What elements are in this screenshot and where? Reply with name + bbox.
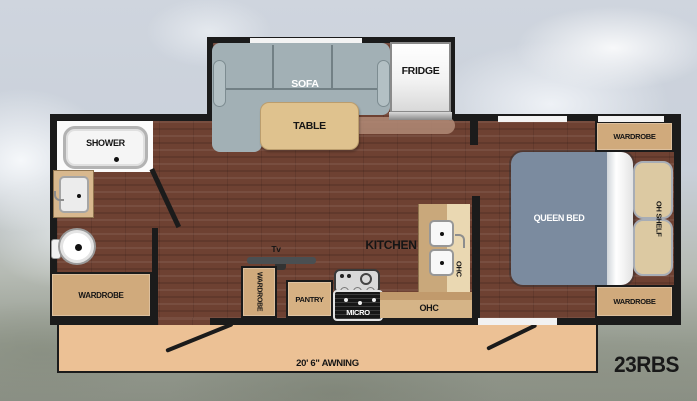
cooktop-knob [347,274,351,278]
bathroom-partition-wall [152,228,158,324]
sink-drain [440,232,444,236]
bathroom-wardrobe-label: WARDROBE [52,274,150,316]
sink-drain [440,261,444,265]
bed-sheet [607,152,633,285]
tv-label: Tv [266,244,286,254]
microwave-knob [372,298,376,302]
queen-bed: QUEEN BED [511,152,633,285]
entry-door-opening-right [478,318,557,325]
bath-faucet-icon [54,191,64,201]
table-label: TABLE [261,103,358,149]
bedroom-wardrobe-top-label: WARDROBE [597,123,672,150]
dinette-table: TABLE [260,102,359,150]
shower-label: SHOWER [66,137,145,149]
toilet [58,228,96,265]
tv [247,257,316,264]
shower-drain [114,157,119,162]
entry-door-opening-left [158,318,210,325]
kitchen-faucet-icon [455,234,465,248]
toilet-flush [75,244,82,251]
kitchen-sink-basin [429,220,454,247]
microwave-label: MICRO [335,307,381,317]
microwave-knob [358,301,362,305]
pantry-label: PANTRY [288,282,331,316]
sink-ohc-label: OHC [451,252,467,286]
bedroom-wardrobe-bottom: WARDROBE [595,285,674,318]
microwave: MICRO [333,290,383,321]
model-number-label: 23RBS [614,352,692,378]
sofa-armrest-right [377,60,390,107]
fridge-label: FRIDGE [392,64,449,78]
microwave-knob [344,298,348,302]
oh-shelf-label: OH SHELF [651,188,667,250]
pantry: PANTRY [286,280,333,318]
queen-bed-label: QUEEN BED [511,211,607,225]
shower-pan: SHOWER [63,126,148,169]
awning-label: 20' 6" AWNING [59,358,596,369]
floorplan-screenshot: 20' 6" AWNING SOFA TABLE FRIDGE SHOWER W… [0,0,697,401]
bedroom-wardrobe-top: WARDROBE [595,121,674,152]
tv-wardrobe-label: WARDROBE [243,268,275,316]
bedroom-wall-lower [472,196,480,318]
tv-wardrobe: WARDROBE [241,266,277,318]
bedroom-wall-upper [470,121,478,145]
bathroom-wardrobe: WARDROBE [50,272,152,318]
sofa-label: SOFA [270,77,340,91]
top-wall-window [598,116,664,122]
top-wall-window [498,116,567,122]
fridge-vent [389,112,452,120]
cooktop-burner-icon [360,273,372,285]
fridge: FRIDGE [390,42,451,113]
bath-sink-drain [77,194,81,198]
cooktop-knob [340,274,344,278]
kitchen-counter-edge [380,292,478,300]
sofa-armrest-left [213,60,226,107]
counter-ohc-label: OHC [399,301,459,314]
bedroom-wardrobe-bottom-label: WARDROBE [597,287,672,316]
